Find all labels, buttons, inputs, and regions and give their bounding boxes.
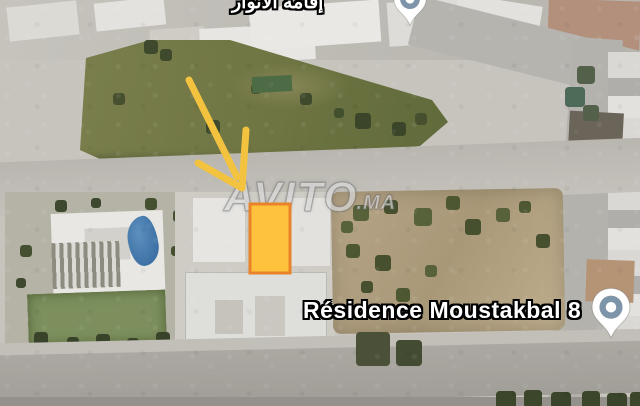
avito-watermark-brand: AVITO (224, 173, 358, 220)
top-place-label[interactable]: إقامة الأنوار (232, 0, 323, 14)
map-pin-icon-residence[interactable] (590, 287, 632, 340)
residence-label[interactable]: Résidence Moustakbal 8 (303, 297, 581, 324)
map-pin-icon-top[interactable] (392, 0, 428, 27)
satellite-map: AVITO.MA إقامة الأنوار Résidence Moustak… (0, 0, 640, 406)
avito-watermark: AVITO.MA (224, 176, 398, 218)
pin-center (606, 302, 617, 313)
avito-watermark-tld: .MA (356, 192, 396, 214)
